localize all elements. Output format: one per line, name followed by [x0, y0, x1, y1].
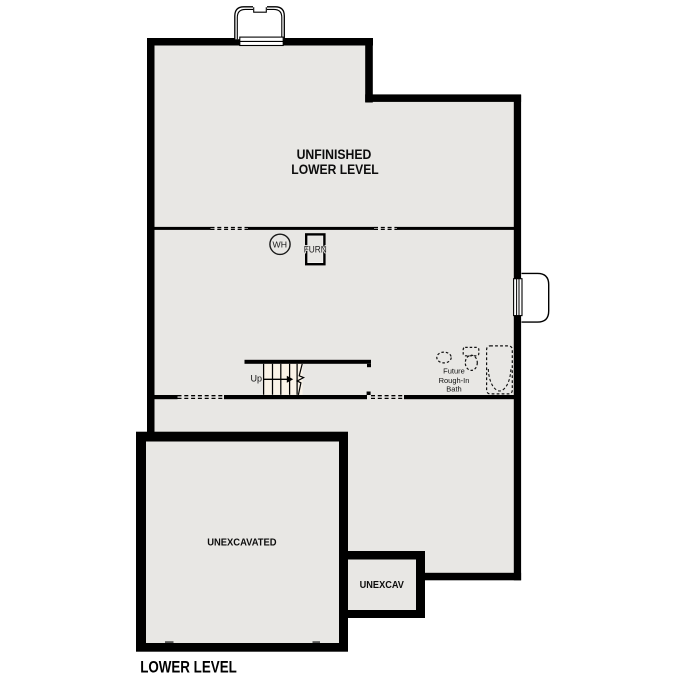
svg-text:Up: Up	[251, 373, 263, 383]
svg-text:Future: Future	[443, 367, 465, 376]
svg-text:UNFINISHED: UNFINISHED	[297, 147, 372, 162]
svg-text:LOWER LEVEL: LOWER LEVEL	[140, 658, 237, 677]
svg-text:WH: WH	[273, 239, 287, 249]
svg-text:UNEXCAVATED: UNEXCAVATED	[207, 537, 277, 548]
svg-text:UNEXCAV: UNEXCAV	[360, 579, 404, 591]
svg-text:Bath: Bath	[446, 385, 461, 394]
svg-text:Rough-In: Rough-In	[439, 376, 470, 385]
svg-text:FURN: FURN	[304, 244, 327, 254]
svg-text:LOWER LEVEL: LOWER LEVEL	[291, 162, 378, 177]
